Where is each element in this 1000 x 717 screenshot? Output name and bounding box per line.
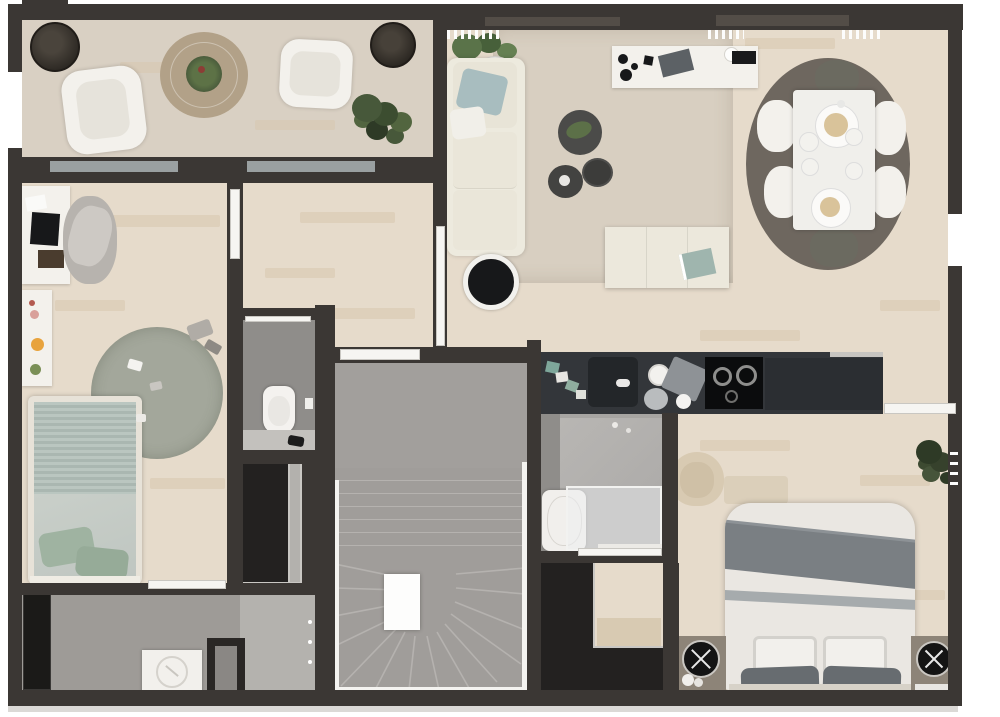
- wall-stair-left: [315, 347, 335, 694]
- wall-left: [8, 148, 22, 704]
- decor-tray: [658, 48, 694, 77]
- desk-box: [38, 250, 64, 268]
- armchair-cushion: [289, 51, 341, 98]
- curtain: [708, 30, 744, 39]
- cup: [676, 394, 691, 409]
- bed-blanket-band: [725, 522, 915, 590]
- bedroom-armchair: [670, 452, 724, 506]
- wall-stair-right: [527, 340, 541, 694]
- plank-streak: [255, 120, 335, 130]
- bowl: [845, 162, 863, 180]
- bedroom-plant: [916, 440, 942, 464]
- door-dot: [308, 640, 312, 644]
- plank-streak: [700, 330, 800, 341]
- nursery-door: [230, 189, 240, 259]
- wc-faucet: [287, 435, 304, 448]
- shelf-item: [31, 338, 44, 351]
- sideboard: [605, 227, 729, 288]
- counter-edge: [830, 352, 883, 357]
- laptop: [30, 212, 60, 246]
- faucet: [616, 379, 630, 387]
- burner: [736, 365, 757, 386]
- toy: [136, 414, 146, 422]
- sofa: [447, 58, 525, 256]
- ribbed-blanket: [34, 402, 136, 494]
- potted-plant: [352, 94, 382, 122]
- planter-pot: [30, 22, 80, 72]
- table-decor: [559, 175, 570, 186]
- radiator-mark: [950, 482, 958, 485]
- plank-streak: [700, 440, 790, 451]
- decor-vase: [618, 54, 628, 64]
- counter-cabinet: [765, 358, 883, 410]
- terrace-armchair: [59, 63, 149, 156]
- wc-vanity: [243, 430, 315, 451]
- left-wall-opening: [8, 72, 22, 148]
- glass-shower: [566, 486, 662, 551]
- dining-table: [793, 90, 875, 230]
- plank-streak: [300, 212, 395, 223]
- faucet-dot: [612, 422, 618, 428]
- closet-side: [290, 464, 300, 582]
- coffee-table-small: [548, 165, 583, 198]
- wardrobe-horizontal: [541, 648, 663, 692]
- curtain: [842, 30, 884, 39]
- wall-terrace-living: [433, 4, 447, 183]
- plan-shadow: [8, 706, 958, 712]
- stair-winders: [335, 558, 527, 692]
- radiator-mark: [950, 462, 958, 465]
- draped-cloth: [63, 202, 117, 270]
- radiator-mark: [950, 472, 958, 475]
- dining-chair: [757, 100, 797, 152]
- wall-terrace-top: [8, 4, 435, 20]
- bowl: [845, 128, 863, 146]
- plank-streak: [860, 475, 930, 486]
- plate: [811, 188, 851, 228]
- nook-bench: [597, 618, 661, 646]
- armchair-cushion: [75, 77, 132, 141]
- kitchen-counter: [540, 352, 883, 414]
- wall-left-upper: [8, 4, 22, 72]
- newel-post: [384, 574, 420, 630]
- plate-stack: [644, 388, 668, 410]
- radiator-mark: [950, 452, 958, 455]
- wall-bathroom-right: [662, 413, 678, 563]
- plant-flower: [198, 66, 205, 73]
- plank-streak: [150, 478, 225, 489]
- toilet-seat: [268, 396, 290, 426]
- closet-door: [236, 464, 288, 582]
- round-side-table: [463, 254, 519, 310]
- stair-straight-steps: [335, 468, 527, 558]
- entry-mat: [240, 592, 318, 692]
- kitchen-sink: [588, 357, 638, 407]
- wall-closet-right: [302, 455, 315, 592]
- throw-pillow-white: [449, 106, 487, 140]
- right-wall-opening: [948, 214, 962, 266]
- bedroom-bench: [724, 476, 788, 504]
- wc-switch: [305, 398, 313, 409]
- window-sill: [247, 161, 375, 172]
- window-lintel: [485, 17, 620, 26]
- wall-nook-right: [663, 563, 679, 694]
- shelf-item: [29, 300, 35, 306]
- entry-door-panel: [215, 646, 237, 691]
- table-plant: [186, 56, 222, 92]
- dish: [576, 390, 586, 399]
- window-lintel: [716, 15, 849, 26]
- bowl: [799, 132, 819, 152]
- stair-railing-left: [335, 480, 339, 692]
- console-table: [612, 46, 758, 88]
- shelf-item: [30, 310, 39, 319]
- round-coffee-table: [160, 32, 248, 118]
- glass: [837, 100, 845, 108]
- coffee-table-large: [558, 110, 602, 155]
- plank-streak: [745, 38, 835, 49]
- planter-pot: [370, 22, 416, 68]
- plank-streak: [110, 215, 220, 227]
- round-tray: [916, 641, 952, 677]
- single-bed: [28, 396, 142, 584]
- bathroom-upper-glass: [560, 418, 662, 488]
- wc-glass-partition: [245, 316, 311, 322]
- floor-plan: [0, 0, 1000, 717]
- burner: [725, 390, 738, 403]
- stair-door: [340, 349, 420, 360]
- dining-end-chair: [810, 227, 858, 267]
- staircase: [335, 363, 527, 692]
- stair-landing: [335, 363, 527, 468]
- nightstand: [676, 636, 726, 692]
- tall-cabinet: [23, 593, 51, 690]
- faucet-dot: [626, 428, 631, 433]
- toilet: [263, 386, 295, 434]
- sofa-cushion: [453, 190, 517, 250]
- coffee-table-small: [582, 158, 613, 187]
- burner: [713, 367, 732, 386]
- curtain: [447, 30, 503, 39]
- sideboard-seam: [646, 227, 647, 288]
- sofa-cushion: [453, 132, 517, 189]
- candle: [682, 674, 694, 686]
- plank-streak: [265, 268, 335, 278]
- bedroom-door: [884, 403, 956, 414]
- winder-lines: [335, 558, 527, 692]
- wall-shelf: [22, 290, 52, 386]
- terrace-armchair: [278, 38, 353, 110]
- decor-box: [643, 55, 653, 65]
- decor-vase: [631, 63, 638, 70]
- candle: [694, 678, 703, 687]
- laundry-door: [148, 580, 226, 589]
- dining-chair: [870, 101, 906, 155]
- bathroom-door: [578, 548, 662, 556]
- plate-food: [820, 197, 840, 217]
- round-tray: [682, 640, 720, 678]
- decor-vase: [620, 69, 632, 81]
- cooktop: [705, 357, 763, 409]
- window-sill: [50, 161, 178, 172]
- entry-door-frame: [207, 638, 245, 693]
- wall-bottom: [8, 690, 958, 706]
- dining-chair: [870, 166, 906, 218]
- door-dot: [308, 620, 312, 624]
- plank-streak: [330, 308, 415, 319]
- living-door: [436, 226, 445, 346]
- double-bed: [725, 503, 915, 690]
- plank-streak: [880, 300, 940, 311]
- decor-book: [679, 248, 717, 280]
- plank-streak: [55, 300, 125, 311]
- desk-chair: [63, 196, 117, 284]
- wall-right: [948, 4, 962, 706]
- bed-fold-line: [725, 590, 915, 610]
- table-decor-plant: [564, 118, 594, 141]
- decor-box-dark: [732, 51, 756, 64]
- bowl: [801, 158, 819, 176]
- armchair-seat: [680, 462, 714, 498]
- door-dot: [308, 660, 312, 664]
- desk-paper: [25, 194, 47, 211]
- shelf-item: [30, 364, 41, 375]
- washing-machine: [142, 650, 202, 692]
